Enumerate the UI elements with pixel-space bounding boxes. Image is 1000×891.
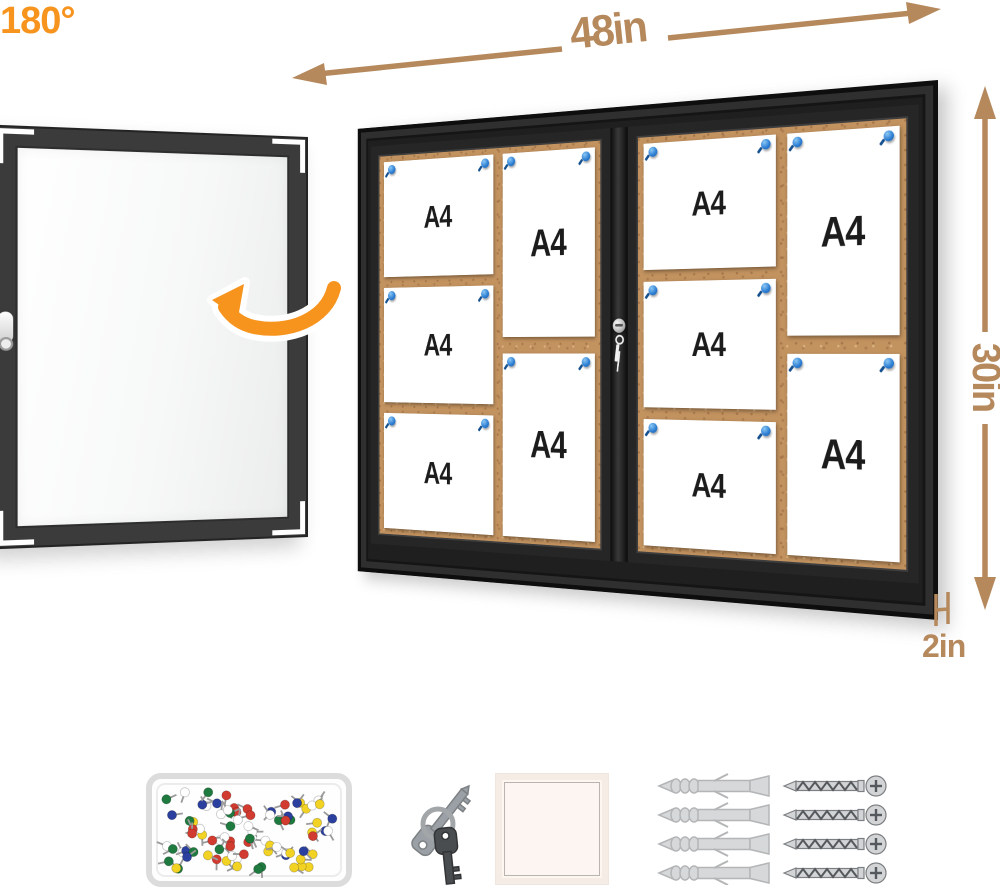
- a4-paper: A4: [787, 126, 900, 336]
- key-icon: [434, 827, 462, 885]
- depth-dimension-label: 2in: [922, 628, 965, 665]
- pushpin-icon: [792, 136, 802, 147]
- a4-label: A4: [691, 183, 725, 224]
- cork-panel-right-inner: A4A4A4 A4A4: [644, 126, 900, 563]
- paper-column: A4A4A4: [384, 154, 493, 535]
- pushpin-icon: [481, 419, 489, 429]
- keys: [388, 772, 492, 888]
- pushpin-icon: [388, 165, 395, 175]
- paper-column: A4A4: [787, 126, 900, 563]
- screw-icon: [784, 776, 886, 796]
- a4-paper: A4: [644, 134, 776, 269]
- pushpin-icon: [388, 291, 395, 300]
- pushpin-icon: [761, 139, 771, 150]
- pushpin-icon: [884, 357, 894, 368]
- a4-label: A4: [691, 325, 725, 365]
- cabinet-face: A4A4A4 A4A4 A4A4A4 A4A4: [371, 104, 919, 583]
- corner-bracket-icon: [0, 510, 34, 546]
- corner-bracket-icon: [272, 501, 305, 535]
- screw-icon: [784, 863, 886, 883]
- pushpin-icon: [507, 356, 515, 366]
- pushpin-icon: [761, 282, 771, 293]
- pushpin-icon: [481, 158, 489, 168]
- height-dimension-label: 30in: [965, 334, 1000, 420]
- wall-anchors: [656, 773, 774, 885]
- a4-paper: A4: [384, 413, 493, 535]
- screws: [782, 774, 896, 886]
- pushpin-box: [145, 772, 353, 888]
- a4-label: A4: [530, 424, 566, 469]
- width-dimension-label: 48in: [568, 2, 649, 60]
- adhesive-pad-surface: [504, 782, 600, 876]
- a4-label: A4: [530, 221, 566, 266]
- paper-column: A4A4: [503, 147, 595, 542]
- pushpin-icon: [792, 357, 802, 368]
- wall-anchor-icon: [659, 774, 769, 798]
- a4-label: A4: [424, 327, 452, 363]
- rotation-label: 180° 180°: [0, 0, 1000, 43]
- a4-paper: A4: [644, 278, 776, 410]
- key-icon: [612, 334, 625, 366]
- pushpin-icon: [884, 130, 894, 142]
- cork-panel-right: A4A4A4 A4A4: [628, 104, 919, 583]
- pushpin-icon: [388, 417, 395, 426]
- a4-paper: A4: [384, 285, 493, 404]
- adhesive-pad: [496, 774, 608, 884]
- a4-label: A4: [691, 465, 725, 506]
- a4-label: A4: [821, 432, 865, 481]
- a4-label: A4: [821, 207, 865, 256]
- product-image: A4A4A4 A4A4 A4A4A4 A4A4: [0, 0, 1000, 891]
- pushpin-icon: [648, 147, 657, 158]
- a4-paper: A4: [787, 353, 900, 562]
- corner-bracket-icon: [0, 128, 34, 164]
- paper-column: A4A4A4: [644, 134, 776, 554]
- corner-bracket-icon: [272, 139, 305, 173]
- center-lock-rail: [610, 127, 627, 562]
- a4-paper: A4: [384, 154, 493, 276]
- pushpin-icon: [582, 151, 590, 161]
- pushpin-icon: [761, 426, 771, 437]
- lock-icon: [613, 318, 626, 333]
- door-lock-icon: [0, 312, 13, 344]
- glass-pane: [15, 146, 289, 529]
- cork-panel-left-inner: A4A4A4 A4A4: [384, 147, 595, 542]
- a4-paper: A4: [503, 353, 595, 542]
- screw-icon: [784, 834, 886, 854]
- wall-anchor-icon: [659, 803, 769, 827]
- pushpin-icon: [648, 423, 657, 433]
- pushpin-icon: [507, 156, 515, 166]
- a4-paper: A4: [644, 419, 776, 554]
- wall-anchor-icon: [659, 832, 769, 856]
- pushpin-icon: [481, 289, 489, 299]
- screw-icon: [784, 805, 886, 825]
- a4-label: A4: [424, 198, 452, 235]
- open-glass-door: [0, 125, 308, 550]
- rotation-label-text: 180°: [0, 0, 75, 42]
- cork-panel-left: A4A4A4 A4A4: [371, 128, 611, 561]
- bulletin-board-cabinet: A4A4A4 A4A4 A4A4A4 A4A4: [358, 80, 938, 620]
- pushpin-icon: [582, 357, 590, 367]
- wall-anchor-icon: [659, 861, 769, 885]
- a4-label: A4: [424, 454, 452, 491]
- a4-paper: A4: [503, 147, 595, 336]
- pushpin-icon: [648, 285, 657, 295]
